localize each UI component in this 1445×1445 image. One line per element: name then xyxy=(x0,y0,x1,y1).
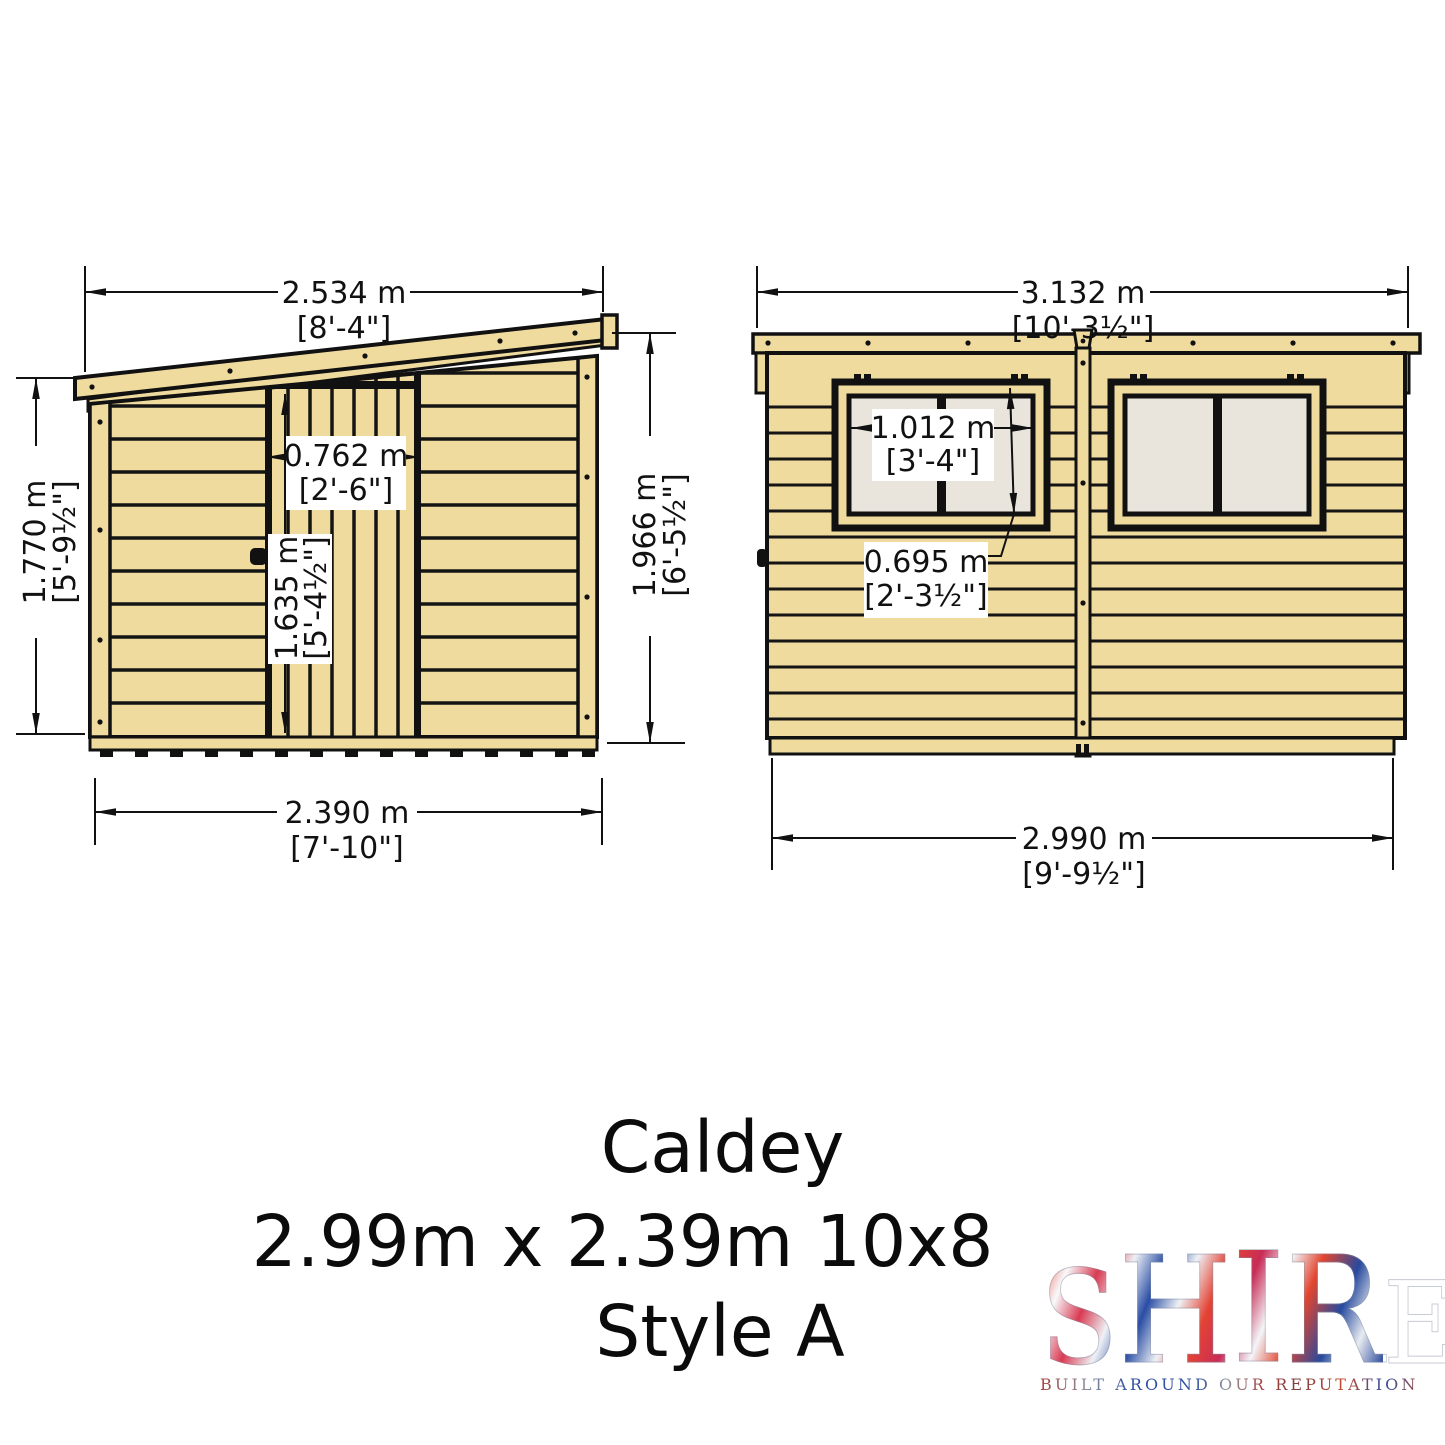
front-base xyxy=(90,737,597,750)
dim-window-height-imperial: [2'-3½"] xyxy=(864,579,988,614)
front-right-corner-trim xyxy=(578,356,597,737)
dim-side-bottom-imperial: [9'-9½"] xyxy=(1022,857,1146,892)
dim-top-metric: 2.534 m xyxy=(282,276,407,311)
dim-side-top-metric: 3.132 m xyxy=(1021,276,1146,311)
dim-window-height-metric: 0.695 m xyxy=(864,545,989,580)
front-left-corner-trim xyxy=(90,402,110,737)
dim-right-imperial: [6'-5½"] xyxy=(658,473,693,597)
side-base xyxy=(770,738,1394,754)
dim-window-width-metric: 1.012 m xyxy=(871,411,996,446)
centre-trim-strip xyxy=(1076,348,1090,756)
side-elevation: 3.132 m [10'-3½"] 2.990 m [9'-9½"] 1.012… xyxy=(753,266,1420,892)
roof-end-cap xyxy=(602,315,617,348)
dim-side-bottom-metric: 2.990 m xyxy=(1022,822,1147,857)
door-handle xyxy=(250,548,267,565)
shire-logo: SHIRE BUILT AROUND OUR REPUTATION xyxy=(1040,1250,1430,1394)
dim-side-top-imperial: [10'-3½"] xyxy=(1012,311,1155,346)
dim-door-width-metric: 0.762 m xyxy=(284,439,409,474)
front-elevation: 2.534 m [8'-4"] 1.770 m [5'-9½"] 1.966 m… xyxy=(14,266,694,866)
shed-technical-drawing: 2.534 m [8'-4"] 1.770 m [5'-9½"] 1.966 m… xyxy=(0,0,1445,960)
logo-letter: S xyxy=(1040,1268,1118,1369)
shire-logo-wordmark: SHIRE xyxy=(1040,1250,1383,1369)
window-right xyxy=(1111,374,1323,528)
base-feet xyxy=(100,750,595,757)
dim-bottom-imperial: [7'-10"] xyxy=(290,831,404,866)
logo-letter: H xyxy=(1118,1254,1232,1369)
dim-door-height-imperial: [5'-4½"] xyxy=(299,536,334,660)
logo-letter: I xyxy=(1232,1250,1285,1369)
dim-window-width-imperial: [3'-4"] xyxy=(886,444,980,479)
dim-top-imperial: [8'-4"] xyxy=(297,311,391,346)
dim-door-width-imperial: [2'-6"] xyxy=(299,473,393,508)
product-name: Caldey xyxy=(0,1112,1445,1183)
logo-letter: E xyxy=(1383,1280,1445,1369)
logo-letter: R xyxy=(1285,1254,1383,1369)
side-door-handle xyxy=(757,549,767,567)
dim-bottom-metric: 2.390 m xyxy=(285,796,410,831)
dim-left-imperial: [5'-9½"] xyxy=(48,480,83,604)
